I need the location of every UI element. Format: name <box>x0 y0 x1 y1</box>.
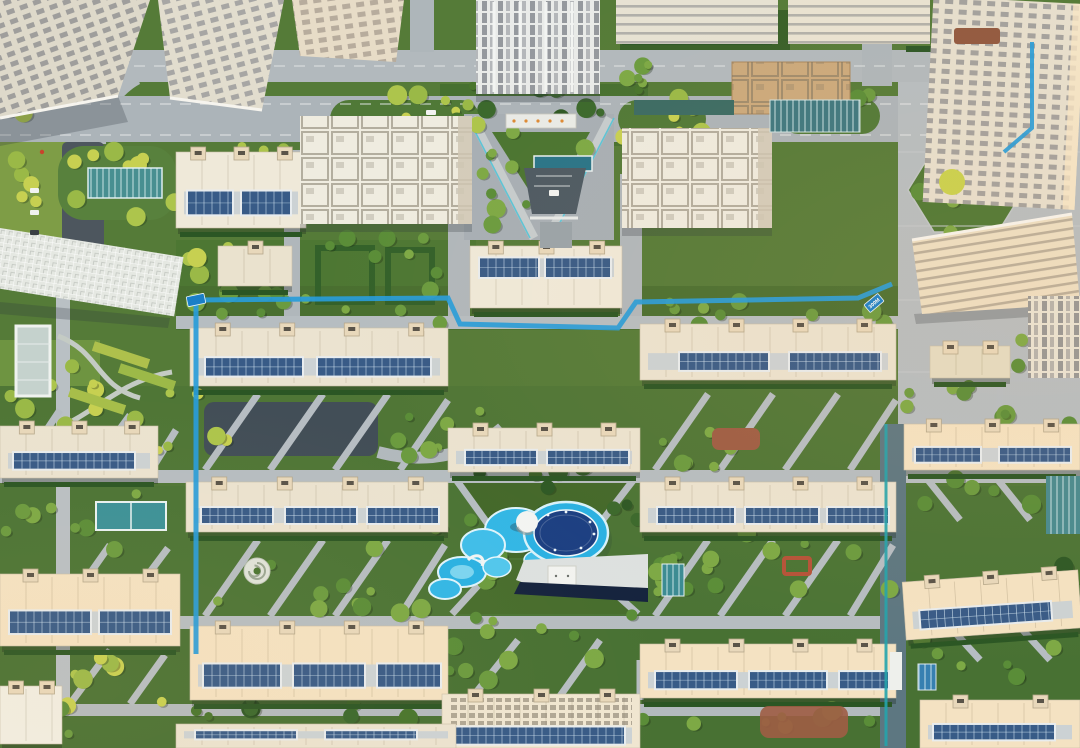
pergola-seat <box>536 119 539 122</box>
bulkhead-slot <box>281 481 288 485</box>
tree <box>584 649 604 669</box>
building-slab <box>920 695 1080 748</box>
tree <box>391 603 410 622</box>
bulkhead-slot <box>477 427 484 431</box>
tree <box>207 427 226 446</box>
midrise-east <box>1028 296 1080 378</box>
car <box>30 210 39 215</box>
tree <box>687 716 701 730</box>
tree <box>64 730 72 738</box>
bulkhead-slot <box>669 481 676 485</box>
tree <box>395 305 406 316</box>
building-slab <box>218 241 292 295</box>
tree <box>204 712 213 721</box>
tree <box>1 526 12 537</box>
tree <box>790 580 808 598</box>
bulkhead-slot <box>733 481 740 485</box>
tree <box>956 661 965 670</box>
tree <box>89 379 98 388</box>
tree <box>522 200 530 208</box>
tree <box>956 386 971 401</box>
midrise-block <box>300 116 472 232</box>
building-slab <box>176 147 306 237</box>
tree <box>418 233 429 244</box>
car <box>426 110 436 115</box>
tree <box>864 716 875 727</box>
tree <box>541 480 555 494</box>
bulkhead-slot <box>27 573 34 577</box>
hedge-fence <box>634 100 734 115</box>
building-slab <box>190 323 448 395</box>
tower-facade <box>1028 296 1080 378</box>
tree <box>708 578 724 594</box>
tree <box>412 599 431 618</box>
building-slab <box>904 419 1080 479</box>
car <box>30 230 39 235</box>
tree <box>390 433 406 449</box>
tree <box>486 188 497 199</box>
tree <box>458 663 473 678</box>
tower-facade <box>300 116 472 224</box>
tree <box>626 609 637 620</box>
building-slab <box>930 341 1010 387</box>
playground <box>760 706 848 738</box>
building-slab <box>640 477 896 541</box>
bulkhead-slot <box>989 423 996 427</box>
building-slab <box>176 724 456 748</box>
bulkhead-slot <box>44 685 51 689</box>
bulkhead-slot <box>412 481 419 485</box>
bulkhead-slot <box>669 323 676 327</box>
tree <box>698 303 709 314</box>
bulkhead-slot <box>928 579 935 583</box>
bulkhead-slot <box>861 481 868 485</box>
tree <box>87 149 99 161</box>
bulkhead-slot <box>87 573 94 577</box>
building-slab <box>470 241 622 317</box>
tree <box>336 578 351 593</box>
tree <box>163 441 173 451</box>
bulkhead-slot <box>129 425 136 429</box>
pergola-seat <box>560 119 563 122</box>
hedge-strip <box>644 384 892 389</box>
pergola <box>506 114 576 128</box>
tree <box>106 541 123 558</box>
tower-facade <box>622 128 772 228</box>
hedge-strip <box>934 382 1006 387</box>
canopy <box>662 564 684 596</box>
bulkhead-slot <box>23 425 30 429</box>
building-shadow <box>2 744 62 748</box>
building-slab <box>640 639 896 707</box>
tree <box>104 142 124 162</box>
tree <box>464 513 477 526</box>
car <box>549 190 559 196</box>
bulkhead-slot <box>348 625 355 629</box>
bulkhead-slot <box>861 323 868 327</box>
exit-road <box>540 222 572 248</box>
slab-north <box>616 0 778 44</box>
road-connector <box>410 0 434 52</box>
tree <box>702 551 719 568</box>
bulkhead-slot <box>987 345 994 349</box>
tree <box>709 462 719 472</box>
pergola-seat <box>524 119 527 122</box>
tree <box>607 501 621 515</box>
bulkhead-slot <box>413 625 420 629</box>
bulkhead-slot <box>284 327 291 331</box>
tree <box>479 670 498 689</box>
bulkhead-slot <box>238 151 245 155</box>
kiddie-pool <box>450 565 474 579</box>
splash-pool <box>461 529 505 561</box>
hedge-strip <box>190 536 444 541</box>
hedge-strip <box>4 482 154 487</box>
tree <box>988 485 999 496</box>
tree <box>462 99 473 110</box>
tree <box>1046 640 1062 656</box>
tree <box>404 249 414 259</box>
bulkhead-slot <box>219 327 226 331</box>
tree <box>470 612 482 624</box>
building-slab <box>640 319 896 389</box>
building-slab <box>0 421 158 487</box>
splash-pool <box>429 579 461 599</box>
bulkhead-slot <box>216 481 223 485</box>
tree <box>132 489 141 498</box>
tree <box>1001 410 1010 419</box>
hedge-strip <box>194 704 444 709</box>
tree <box>313 586 328 601</box>
tree <box>932 648 943 659</box>
bulkhead-slot <box>797 481 804 485</box>
bulkhead-slot <box>594 245 601 249</box>
tree <box>216 308 228 320</box>
tree <box>1003 660 1011 668</box>
hedge-strip <box>474 312 618 317</box>
pool-float <box>589 521 592 524</box>
tree <box>401 447 417 463</box>
tree <box>67 154 81 168</box>
tree <box>67 190 85 208</box>
bulkhead-slot <box>252 245 259 249</box>
tree <box>441 96 450 105</box>
tower-central <box>476 0 600 102</box>
playground <box>712 428 760 450</box>
tree <box>73 669 92 688</box>
tower-facade <box>616 0 778 44</box>
deep-pool <box>534 510 598 556</box>
building-slab <box>0 681 62 748</box>
tree <box>846 544 862 560</box>
bulkhead-slot <box>219 625 226 629</box>
tower-shadow <box>300 224 472 232</box>
tree <box>762 542 780 560</box>
tree <box>900 400 913 413</box>
bulkhead-slot <box>605 427 612 431</box>
spiral-center <box>254 568 261 575</box>
hedge-strip <box>222 290 288 295</box>
bulkhead-slot <box>281 151 288 155</box>
pool-house-door <box>555 575 557 577</box>
tree <box>488 149 497 158</box>
tree <box>368 250 381 263</box>
building-slab <box>186 477 448 541</box>
bulkhead-slot <box>987 575 994 579</box>
tower-facade <box>292 0 404 62</box>
tree <box>15 399 35 419</box>
canopy <box>1046 476 1080 534</box>
scene-svg: 300M <box>0 0 1080 748</box>
tower-shadow <box>622 228 772 236</box>
tree <box>487 199 506 218</box>
pergola-seat <box>512 119 515 122</box>
tree <box>1022 495 1041 514</box>
bulkhead-slot <box>492 245 499 249</box>
tree <box>674 455 691 472</box>
bulkhead-slot <box>930 423 937 427</box>
pool-float <box>565 511 568 514</box>
tree <box>420 441 437 458</box>
pool-float <box>580 547 583 550</box>
bulkhead-slot <box>472 693 479 697</box>
building-slab <box>190 621 448 709</box>
bike-shed <box>918 664 936 690</box>
tree <box>715 309 726 320</box>
tree <box>341 305 349 313</box>
building-slab <box>902 565 1080 649</box>
tree <box>405 413 413 421</box>
tree <box>187 248 206 267</box>
tree <box>343 708 358 723</box>
hedge-strip <box>644 536 892 541</box>
tree <box>431 267 443 279</box>
tree <box>157 697 167 707</box>
bulkhead-slot <box>538 693 545 697</box>
tree <box>387 85 407 105</box>
bulkhead-slot <box>195 151 202 155</box>
car <box>30 188 39 193</box>
tree <box>881 580 899 598</box>
tree <box>488 617 497 626</box>
pool-float <box>554 549 557 552</box>
tree <box>917 496 932 511</box>
tree <box>70 523 80 533</box>
bulkhead-slot <box>1045 571 1052 575</box>
tree <box>15 504 30 519</box>
bulkhead-slot <box>541 427 548 431</box>
tree <box>339 230 356 247</box>
tree <box>480 624 495 639</box>
tree <box>536 623 547 634</box>
bulkhead-slot <box>13 685 20 689</box>
tree <box>30 196 41 207</box>
slab-north <box>788 0 930 44</box>
aerial-photo: 300M <box>0 0 1080 748</box>
pergola-seat <box>548 119 551 122</box>
bulkhead-slot <box>413 327 420 331</box>
red-object <box>40 150 44 154</box>
hedge-strip <box>452 476 636 481</box>
bulkhead-slot <box>861 643 868 647</box>
hedge-strip <box>180 232 302 237</box>
bulkhead-slot <box>733 323 740 327</box>
tree <box>569 631 579 641</box>
tree <box>8 151 26 169</box>
tower-east-face <box>758 128 772 228</box>
tree <box>310 600 327 617</box>
tower-facade <box>788 0 930 44</box>
bulkhead-slot <box>797 643 804 647</box>
tree <box>409 85 428 104</box>
yellow-tree <box>939 169 965 195</box>
tower-shadow <box>476 94 600 102</box>
canopy <box>770 100 860 132</box>
bulkhead-slot <box>1048 423 1055 427</box>
tree <box>379 230 396 247</box>
tree <box>964 480 979 495</box>
bulkhead-slot <box>797 323 804 327</box>
tree <box>634 74 642 82</box>
pool-house-door <box>567 575 569 577</box>
garden-pavilion <box>16 326 50 396</box>
tree <box>1015 334 1028 347</box>
tree <box>904 388 914 398</box>
building-body <box>0 686 62 744</box>
tree <box>1008 668 1025 685</box>
tower-north <box>292 0 404 62</box>
tower-north <box>158 0 284 110</box>
tree <box>366 587 375 596</box>
red-court <box>954 28 1000 44</box>
bulkhead-slot <box>284 625 291 629</box>
tree <box>622 499 633 510</box>
tree <box>126 207 145 226</box>
bulkhead-slot <box>604 693 611 697</box>
pool-house <box>548 566 576 586</box>
tree <box>190 265 209 284</box>
tree <box>65 359 79 373</box>
tree <box>477 100 496 119</box>
bulkhead-slot <box>733 643 740 647</box>
tree <box>505 160 518 173</box>
bulkhead-slot <box>147 573 154 577</box>
building-slab <box>0 569 180 655</box>
tree <box>366 539 383 556</box>
pool-float <box>593 533 596 536</box>
tower-facade <box>158 0 284 110</box>
tree <box>256 308 265 317</box>
hedge-strip <box>194 390 444 395</box>
gatehouse <box>890 652 902 690</box>
bulkhead-slot <box>947 345 954 349</box>
tree <box>619 70 635 86</box>
bulkhead-slot <box>669 643 676 647</box>
tree <box>483 216 501 234</box>
tree <box>475 407 484 416</box>
tree <box>499 651 518 670</box>
hedge-strip <box>4 650 176 655</box>
pool-float <box>547 514 550 517</box>
tree <box>469 82 477 90</box>
bulkhead-slot <box>348 327 355 331</box>
bulkhead-slot <box>957 699 964 703</box>
bulkhead-slot <box>347 481 354 485</box>
tree <box>644 61 652 69</box>
tree <box>46 503 57 514</box>
tree <box>576 139 595 158</box>
tree <box>325 241 335 251</box>
tree <box>16 191 27 202</box>
tree <box>1011 359 1025 373</box>
building-slab <box>442 689 640 748</box>
bulkhead-slot <box>76 425 83 429</box>
tree <box>213 596 222 605</box>
building-slab <box>448 423 640 481</box>
canopy <box>88 168 162 198</box>
tower-east-face <box>458 116 472 224</box>
bulkhead-slot <box>1037 699 1044 703</box>
midrise-block <box>622 128 772 236</box>
tree <box>659 438 667 446</box>
tree <box>353 598 372 617</box>
tree <box>477 168 489 180</box>
splash-pool <box>483 557 511 577</box>
